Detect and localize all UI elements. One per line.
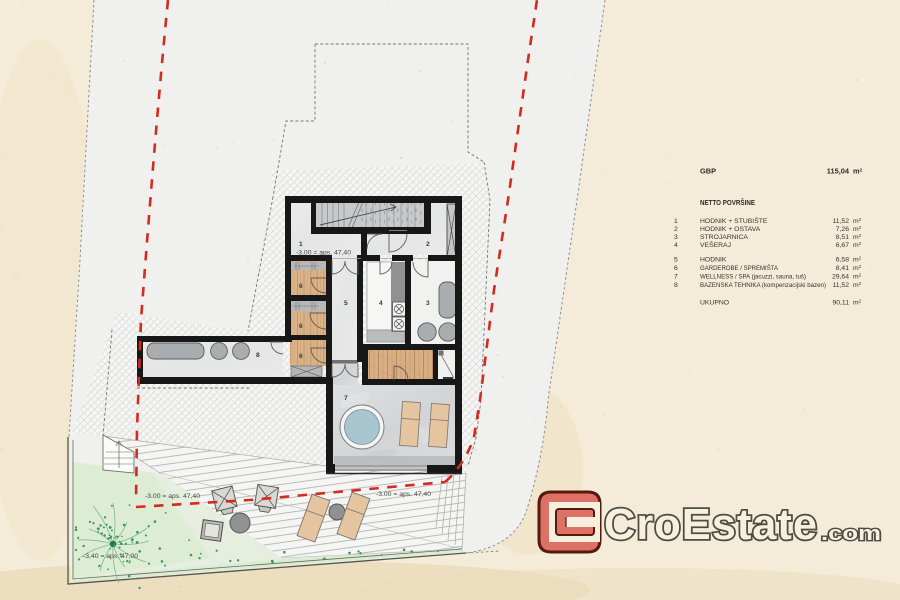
svg-text:6,58: 6,58: [836, 256, 849, 263]
svg-text:90,11: 90,11: [832, 300, 849, 307]
svg-text:-3,40 = aps. 47,00: -3,40 = aps. 47,00: [83, 553, 138, 560]
svg-text:CroEstate: CroEstate: [604, 500, 818, 549]
svg-text:8: 8: [256, 352, 260, 359]
svg-text:2: 2: [674, 226, 678, 233]
svg-text:3: 3: [674, 234, 678, 241]
svg-text:5: 5: [674, 256, 678, 263]
svg-text:GBP: GBP: [700, 167, 716, 176]
svg-text:5: 5: [344, 300, 348, 307]
svg-text:6: 6: [674, 265, 678, 272]
svg-text:6: 6: [299, 353, 303, 360]
svg-text:7: 7: [344, 395, 348, 402]
svg-text:NETTO POVRŠINE: NETTO POVRŠINE: [700, 198, 755, 207]
svg-text:VEŠERAJ: VEŠERAJ: [700, 240, 731, 249]
svg-text:6,67: 6,67: [836, 242, 849, 249]
svg-text:HODNIK: HODNIK: [700, 256, 727, 263]
svg-text:4: 4: [379, 300, 383, 307]
svg-text:HODNIK + OSTAVA: HODNIK + OSTAVA: [700, 226, 761, 233]
svg-text:1: 1: [674, 218, 678, 225]
svg-text:8,51: 8,51: [836, 234, 849, 241]
svg-text:3: 3: [426, 300, 430, 307]
svg-text:-3.00 = aps. 47,40: -3.00 = aps. 47,40: [376, 491, 431, 498]
svg-text:6: 6: [299, 323, 303, 330]
svg-text:7: 7: [674, 273, 678, 280]
svg-text:-3.00 = aps. 47,40: -3.00 = aps. 47,40: [296, 250, 351, 257]
svg-text:11,52: 11,52: [832, 282, 849, 289]
svg-text:115,04: 115,04: [827, 167, 850, 176]
svg-text:29,64: 29,64: [832, 273, 849, 280]
svg-text:6: 6: [299, 283, 303, 290]
svg-text:-3.00 = aps. 47,40: -3.00 = aps. 47,40: [145, 493, 200, 500]
svg-text:WELLNESS / SPA (jacuzzi, sauna: WELLNESS / SPA (jacuzzi, sauna, tuš): [700, 273, 806, 280]
svg-text:.com: .com: [821, 523, 881, 545]
svg-text:1: 1: [299, 241, 303, 248]
svg-text:11,52: 11,52: [832, 218, 849, 225]
svg-text:7,26: 7,26: [836, 226, 849, 233]
svg-text:4: 4: [674, 242, 678, 249]
svg-text:2: 2: [426, 241, 430, 248]
svg-text:STROJARNICA: STROJARNICA: [700, 234, 748, 241]
svg-text:8: 8: [674, 282, 678, 289]
svg-text:GARDEROBE / SPREMIŠTA: GARDEROBE / SPREMIŠTA: [700, 263, 778, 272]
svg-text:8,41: 8,41: [836, 265, 849, 272]
svg-text:BAZENSKA TEHNIKA (kompenzacijs: BAZENSKA TEHNIKA (kompenzacijski bazen): [700, 282, 826, 289]
svg-text:UKUPNO: UKUPNO: [700, 300, 729, 307]
svg-text:HODNIK + STUBIŠTE: HODNIK + STUBIŠTE: [700, 216, 768, 225]
